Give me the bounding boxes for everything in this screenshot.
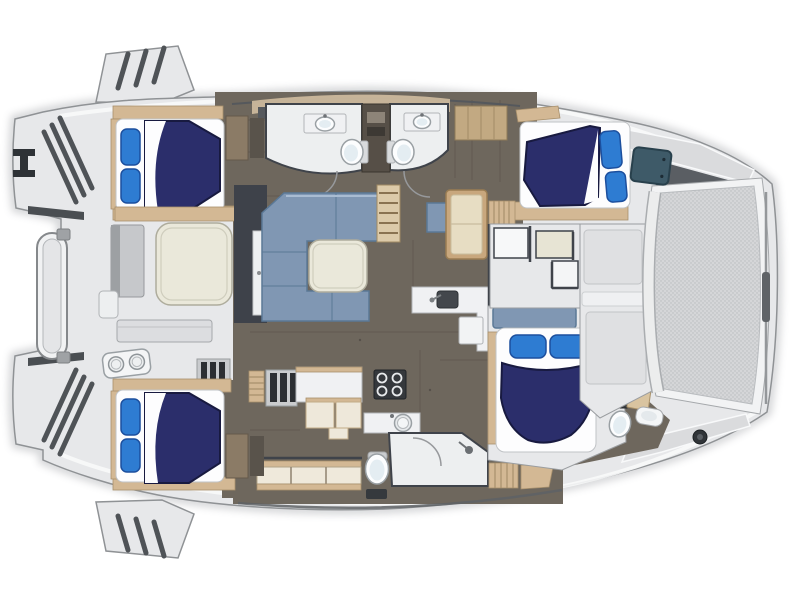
chart-lounge: [446, 190, 487, 259]
companionway-ladder: [377, 185, 400, 242]
floorplan-svg: [0, 0, 800, 600]
bow-fitting: [762, 272, 770, 322]
forward-table: [536, 231, 573, 258]
pillow: [599, 130, 622, 169]
dresser: [226, 116, 264, 160]
seat-panel: [584, 230, 642, 284]
dresser: [226, 434, 264, 478]
divider-shelf: [367, 112, 385, 123]
bar-cabinet: [459, 317, 483, 344]
deck-hatch-teal: [630, 147, 672, 185]
toilet-left-icon: [341, 140, 368, 165]
dinghy-davit: [37, 229, 70, 363]
galley-louver-steps: [249, 370, 297, 406]
cockpit-table: [156, 223, 232, 305]
pillow: [121, 399, 140, 435]
storage-panel: [494, 228, 528, 258]
wardrobe-shelves: [455, 106, 507, 140]
forward-seat: [552, 261, 578, 288]
pillow: [605, 171, 628, 203]
bar-sink: [437, 291, 458, 308]
port-quarter-steps: [96, 46, 194, 103]
salon-table: [309, 240, 367, 292]
divider-locker: [367, 127, 385, 136]
pillow: [121, 129, 140, 165]
galley-sink-counter: [364, 413, 420, 433]
vanity-sink-right: [404, 113, 440, 131]
cabin-settee: [493, 307, 576, 328]
seat-panel: [586, 312, 646, 384]
vanity-sink-left: [304, 114, 346, 133]
toilet-icon: [366, 452, 389, 484]
seat-divider: [582, 292, 648, 306]
pillow: [121, 169, 140, 203]
bench-back: [111, 225, 120, 297]
bath-mat: [366, 489, 387, 499]
dinette-bench: [256, 458, 362, 490]
pillow: [121, 439, 140, 472]
yacht-floorplan-image: [0, 0, 800, 600]
anchor-winch-icon: [693, 430, 707, 444]
pillow: [510, 335, 546, 358]
double-sink-unit: [102, 348, 152, 379]
toilet-right-icon: [387, 140, 414, 165]
companionway-louver: [489, 201, 515, 224]
cockpit-corner-seat: [99, 291, 118, 318]
cockpit-bench-forward: [117, 320, 212, 342]
galley-stove: [374, 370, 406, 399]
starboard-quarter-steps: [96, 500, 194, 558]
trampoline-mesh: [654, 186, 761, 404]
